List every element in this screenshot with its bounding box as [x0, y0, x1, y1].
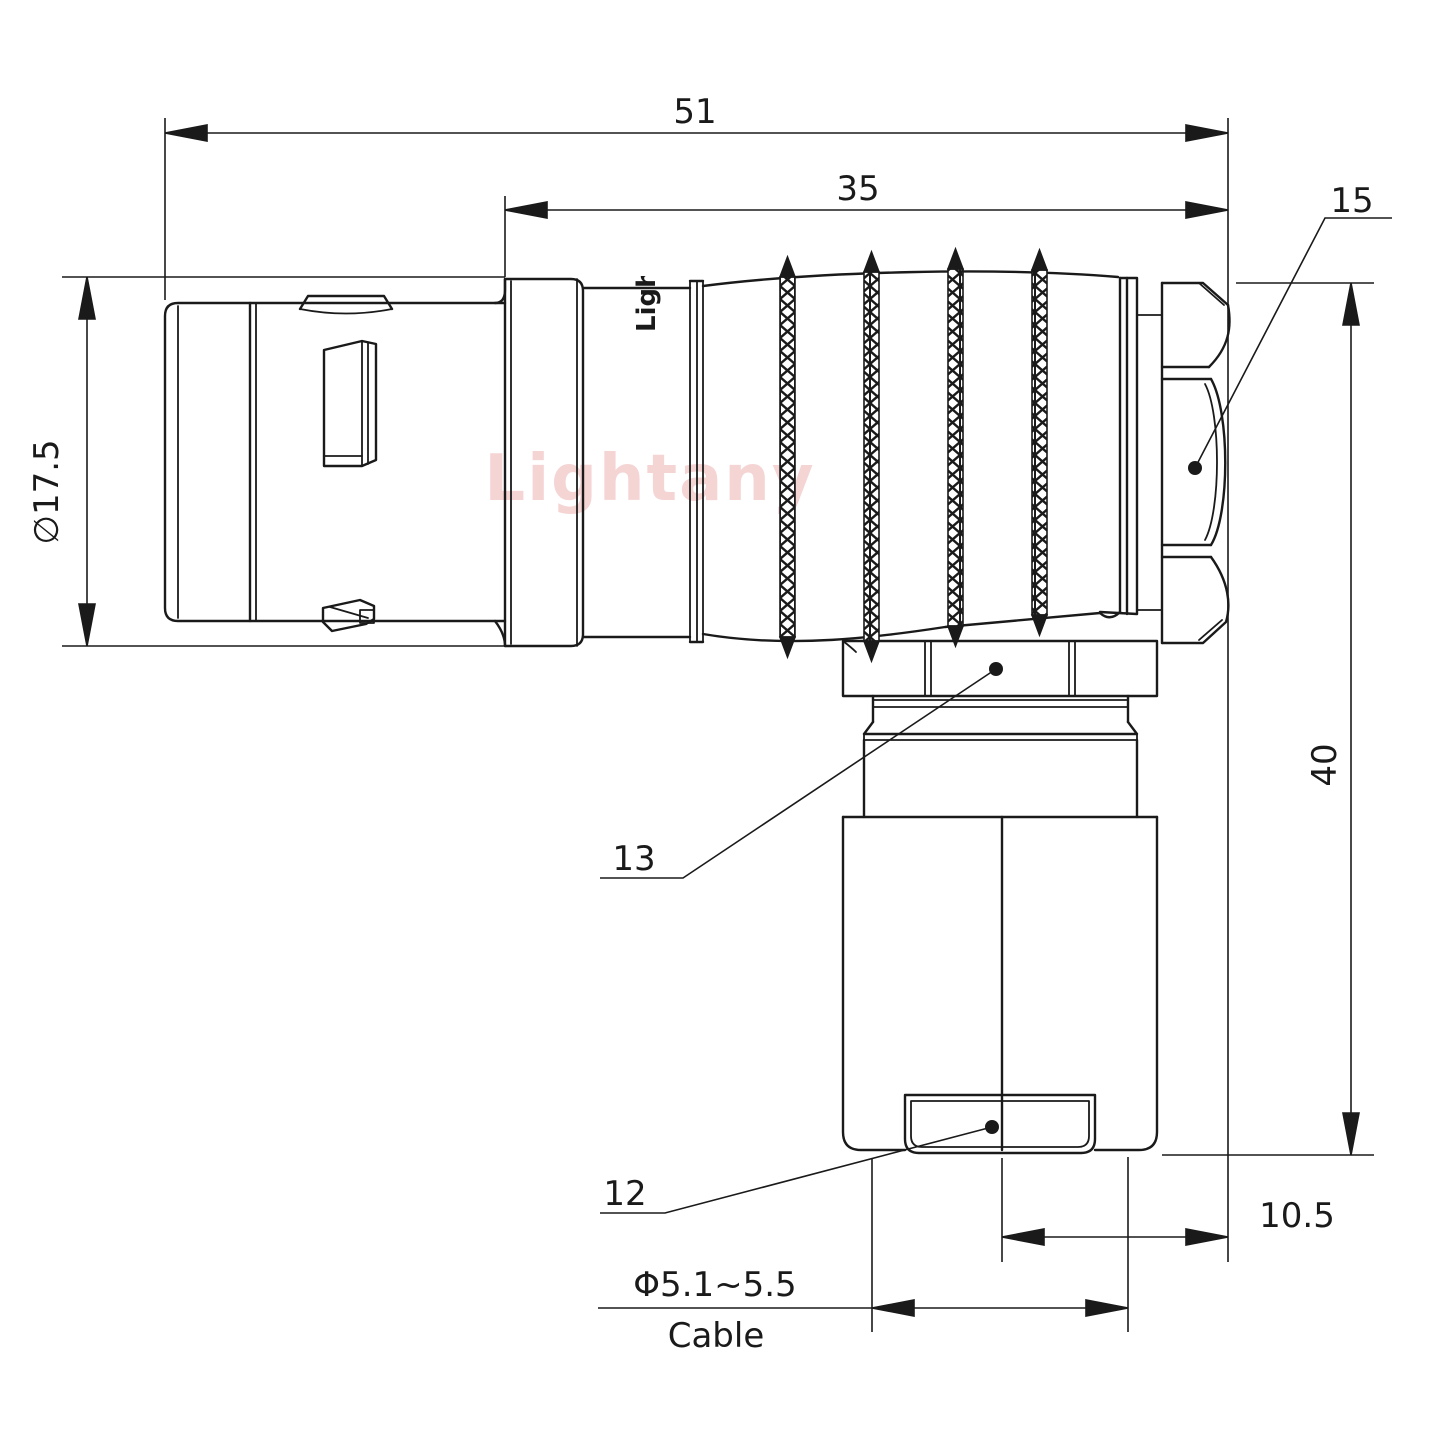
- dim-front-diameter: [62, 277, 505, 646]
- dim-text-rear-length: 35: [836, 169, 879, 209]
- end-plate: [1100, 278, 1162, 641]
- leader-backshell-nut: [1188, 218, 1392, 475]
- knurl-bands: [780, 249, 1047, 661]
- dimension-lines: [62, 118, 1392, 1332]
- dim-height: [1162, 283, 1374, 1155]
- watermark-text: Lightany: [484, 442, 815, 516]
- connector-body: [165, 271, 1230, 1153]
- part-label-backshell-nut: 15: [1330, 181, 1373, 221]
- dim-cable-diameter: [598, 1157, 1128, 1332]
- dim-text-height: 40: [1305, 743, 1345, 786]
- neck-and-flare: [864, 696, 1137, 817]
- body-marking: Lightany: [632, 204, 662, 332]
- part-label-cable-clamp: 12: [603, 1174, 646, 1214]
- leader-cable-clamp: [600, 1120, 999, 1213]
- leader-coupling-nut: [600, 662, 1003, 878]
- body-marking-text: Lightany: [632, 204, 662, 332]
- strain-relief-body: [843, 817, 1157, 1153]
- dim-axis-offset: [1002, 1158, 1228, 1262]
- technical-drawing-page: Lightany: [0, 0, 1440, 1440]
- dim-text-front-diameter: ∅17.5: [27, 439, 67, 544]
- front-shell: [165, 296, 505, 631]
- dim-text-total-length: 51: [673, 92, 716, 132]
- dim-text-axis-offset: 10.5: [1259, 1196, 1335, 1236]
- connector-drawing: Lightany: [0, 0, 1440, 1440]
- part-label-coupling-nut: 13: [612, 839, 655, 879]
- dim-text-cable-word: Cable: [668, 1316, 765, 1356]
- dim-text-cable-diameter: Φ5.1~5.5: [633, 1265, 796, 1305]
